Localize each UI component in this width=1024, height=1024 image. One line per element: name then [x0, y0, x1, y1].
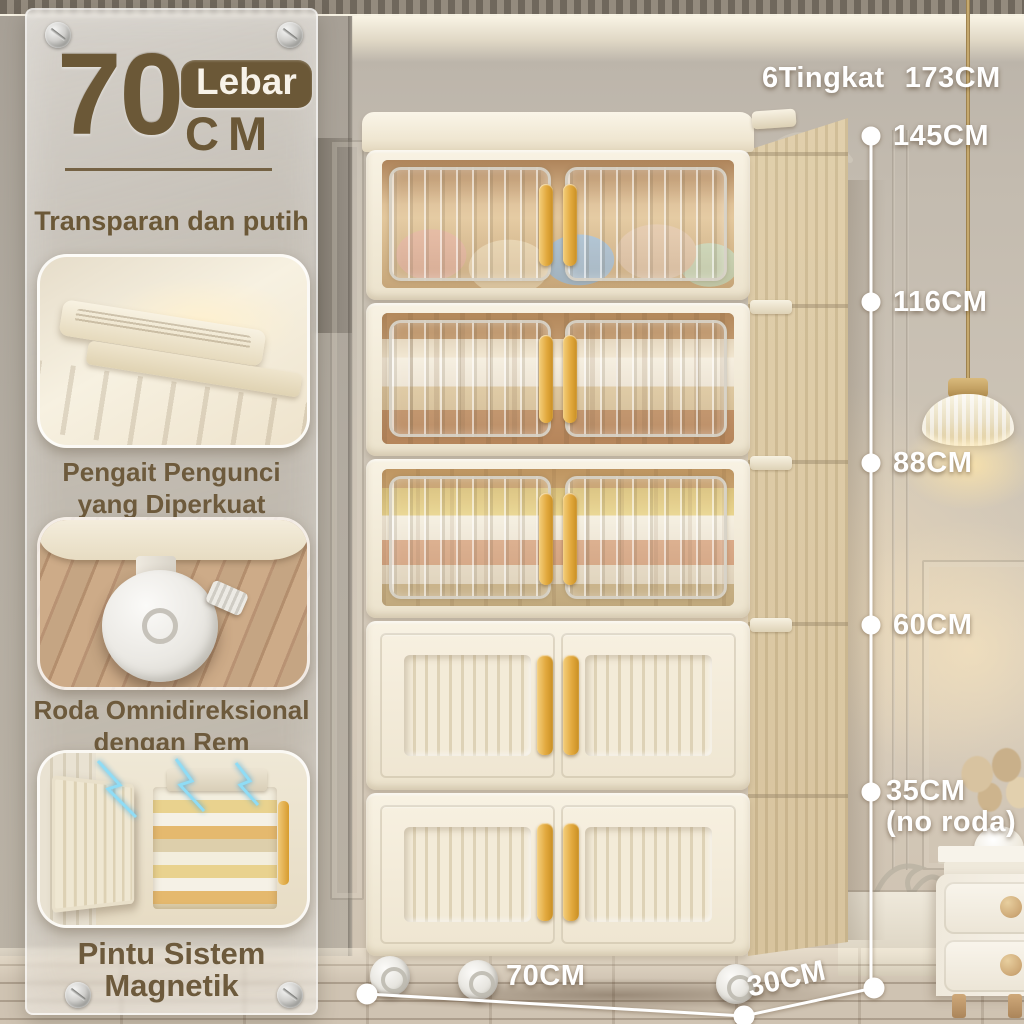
feature-image-magnetic-door [37, 750, 310, 928]
height-mark-116: 116CM [893, 286, 987, 319]
info-glass-panel: 70 Lebar CM Transparan dan putih Pengait… [25, 8, 318, 1015]
height-mark-35: 35CM [886, 775, 965, 808]
caster-hub [142, 608, 178, 644]
width-badge: Lebar [181, 60, 312, 108]
feature-caption-2: Roda Omnidireksional dengan Rem [27, 694, 316, 758]
total-height-label: 6Tingkat 173CM [762, 62, 1001, 95]
height-mark-note: (no roda) [886, 806, 1016, 839]
divider-line [65, 168, 272, 171]
feature-image-latch [37, 254, 310, 448]
height-mark-145: 145CM [893, 120, 989, 153]
caption-line: yang Diperkuat [27, 488, 316, 520]
feature-caption-1: Pengait Pengunci yang Diperkuat [27, 456, 316, 520]
screw-icon [277, 22, 303, 48]
height-mark-60: 60CM [893, 609, 972, 642]
height-mark-88: 88CM [893, 447, 972, 480]
caption-line: Pengait Pengunci [27, 456, 316, 488]
magnetic-spark-icon [80, 755, 270, 825]
total-height-value: 173CM [905, 62, 1001, 95]
feature-caption-3: Pintu Sistem Magnetik [27, 938, 316, 1002]
panel-subtitle: Transparan dan putih [27, 206, 316, 237]
total-tier-text: 6Tingkat [762, 62, 885, 95]
cabinet-bottom-edge [40, 520, 307, 560]
caption-line: Roda Omnidireksional [27, 694, 316, 726]
caster-wheel-icon [102, 570, 218, 682]
feature-image-caster [37, 517, 310, 690]
product-scene: 6Tingkat 173CM 145CM 116CM 88CM 60CM 35C… [0, 0, 1024, 1024]
caption-line: Pintu Sistem Magnetik [27, 938, 316, 1002]
width-dimension-label: 70CM [506, 960, 585, 993]
width-unit: CM [185, 106, 276, 161]
gold-hinge-bar [278, 801, 289, 885]
width-value: 70 [57, 36, 182, 152]
